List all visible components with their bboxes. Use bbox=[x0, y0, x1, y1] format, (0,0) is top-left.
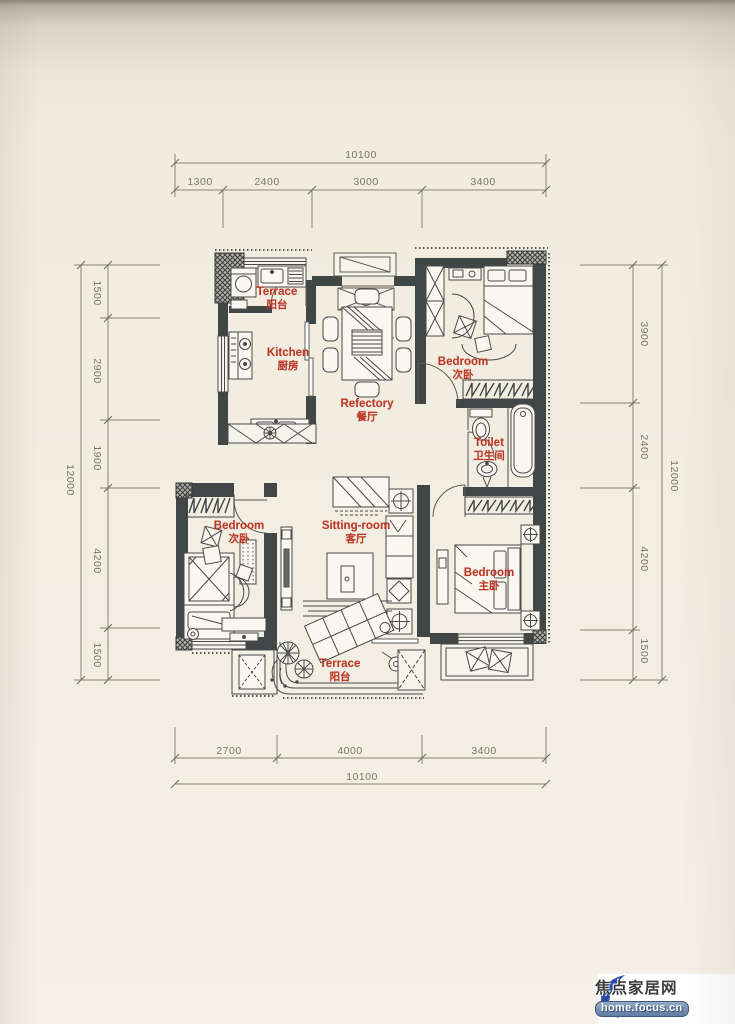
watermark-site-url[interactable]: home.focus.cn bbox=[595, 1001, 689, 1017]
room-label-toilet: Toilet 卫生间 bbox=[473, 437, 505, 462]
room-label-bedroom-third: Bedroom 次卧 bbox=[214, 520, 264, 545]
scanned-floorplan-page: 10100 1300 2400 3000 3400 2700 4000 3400… bbox=[0, 0, 735, 1024]
dim-top-seg-3: 3000 bbox=[353, 176, 378, 188]
room-label-bedroom-second: Bedroom 次卧 bbox=[438, 356, 488, 381]
dimension-lines bbox=[74, 154, 668, 788]
dim-bottom-total: 10100 bbox=[346, 771, 378, 783]
dim-left-seg-1: 1500 bbox=[91, 280, 103, 305]
dim-left-seg-5: 1500 bbox=[91, 642, 103, 667]
lounge-chair bbox=[305, 594, 394, 663]
dim-bottom-seg-1: 2700 bbox=[216, 745, 241, 757]
dim-right-seg-2: 2400 bbox=[638, 434, 650, 459]
dim-top-seg-4: 3400 bbox=[470, 176, 495, 188]
watermark-site-name: 焦点家居网 bbox=[595, 981, 689, 997]
room-label-bedroom-master: Bedroom 主卧 bbox=[464, 567, 514, 592]
left-ledge bbox=[232, 650, 277, 694]
dim-right-seg-3: 4200 bbox=[638, 546, 650, 571]
dim-top-seg-2: 2400 bbox=[254, 176, 279, 188]
dim-top-total: 10100 bbox=[345, 149, 377, 161]
room-label-terrace-bottom: Terrace 阳台 bbox=[320, 658, 361, 683]
dim-top-seg-1: 1300 bbox=[187, 176, 212, 188]
watermark: 焦点家居网 home.focus.cn bbox=[598, 974, 735, 1024]
dim-left-total: 12000 bbox=[64, 464, 76, 496]
dim-left-seg-3: 1900 bbox=[91, 445, 103, 470]
dim-right-seg-4: 1500 bbox=[638, 638, 650, 663]
dim-bottom-seg-2: 4000 bbox=[337, 745, 362, 757]
master-bay-window bbox=[441, 644, 533, 680]
dim-bottom-seg-3: 3400 bbox=[471, 745, 496, 757]
dim-left-seg-4: 4200 bbox=[91, 548, 103, 573]
dim-right-seg-1: 3900 bbox=[638, 321, 650, 346]
hall-flower-icon bbox=[264, 427, 276, 439]
room-label-terrace-top: Terrace 阳台 bbox=[257, 286, 298, 311]
dim-left-seg-2: 2900 bbox=[91, 358, 103, 383]
dim-right-total: 12000 bbox=[668, 460, 680, 492]
hall-cabinet bbox=[228, 424, 316, 443]
room-label-sitting-room: Sitting-room 客厅 bbox=[322, 520, 390, 545]
bedroom-second-furniture bbox=[426, 266, 533, 360]
room-label-refectory: Refectory 餐厅 bbox=[340, 398, 393, 423]
room-label-kitchen: Kitchen 厨房 bbox=[267, 347, 309, 372]
